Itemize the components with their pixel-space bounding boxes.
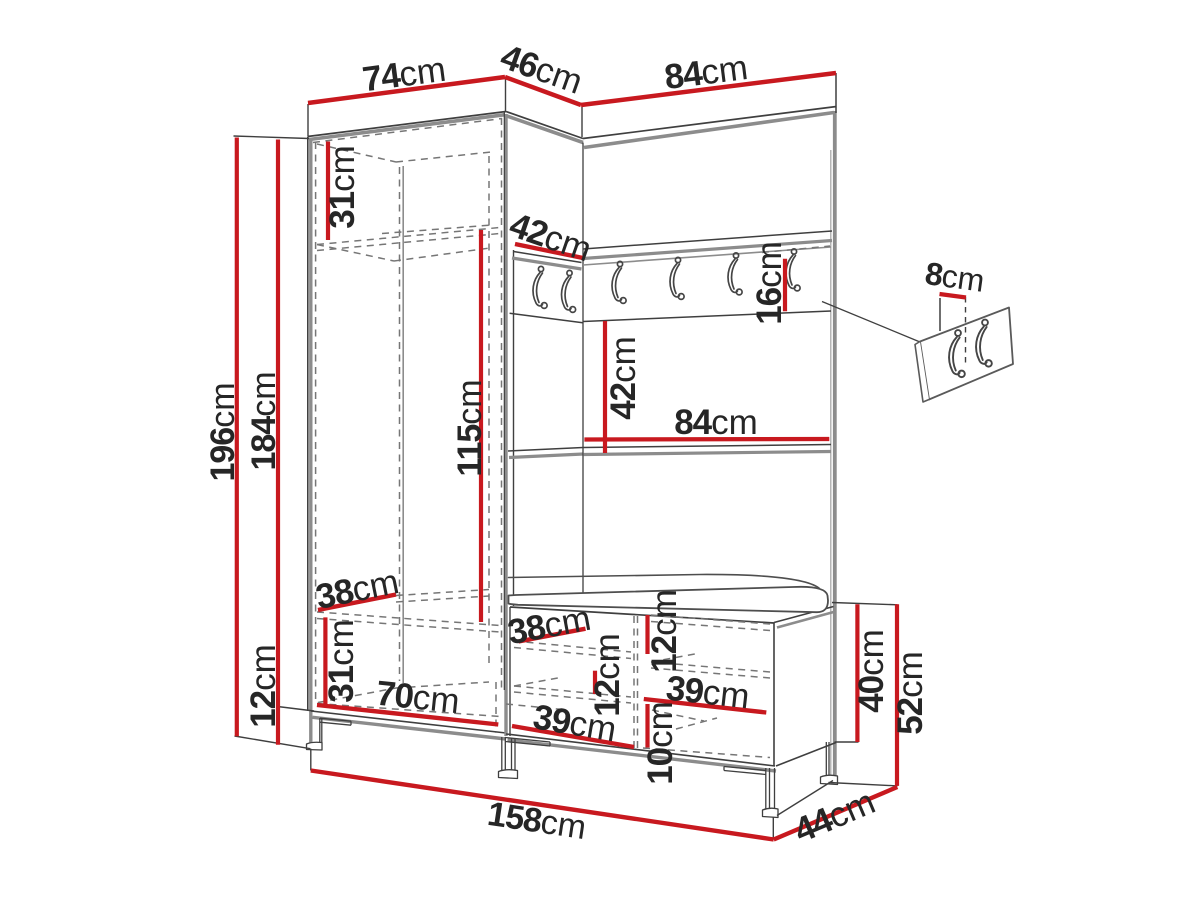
svg-text:184cm: 184cm [245, 371, 283, 470]
svg-text:40cm: 40cm [852, 629, 891, 713]
svg-text:12cm: 12cm [645, 589, 684, 673]
svg-text:31cm: 31cm [323, 145, 362, 229]
svg-text:31cm: 31cm [322, 619, 361, 703]
svg-text:115cm: 115cm [451, 379, 489, 476]
svg-text:84cm: 84cm [674, 403, 758, 442]
svg-text:16cm: 16cm [750, 241, 789, 325]
svg-text:12cm: 12cm [244, 644, 283, 728]
svg-text:42cm: 42cm [604, 336, 643, 420]
svg-text:196cm: 196cm [204, 382, 242, 481]
svg-text:52cm: 52cm [891, 651, 930, 735]
svg-text:12cm: 12cm [588, 633, 627, 717]
svg-text:10cm: 10cm [641, 701, 680, 785]
